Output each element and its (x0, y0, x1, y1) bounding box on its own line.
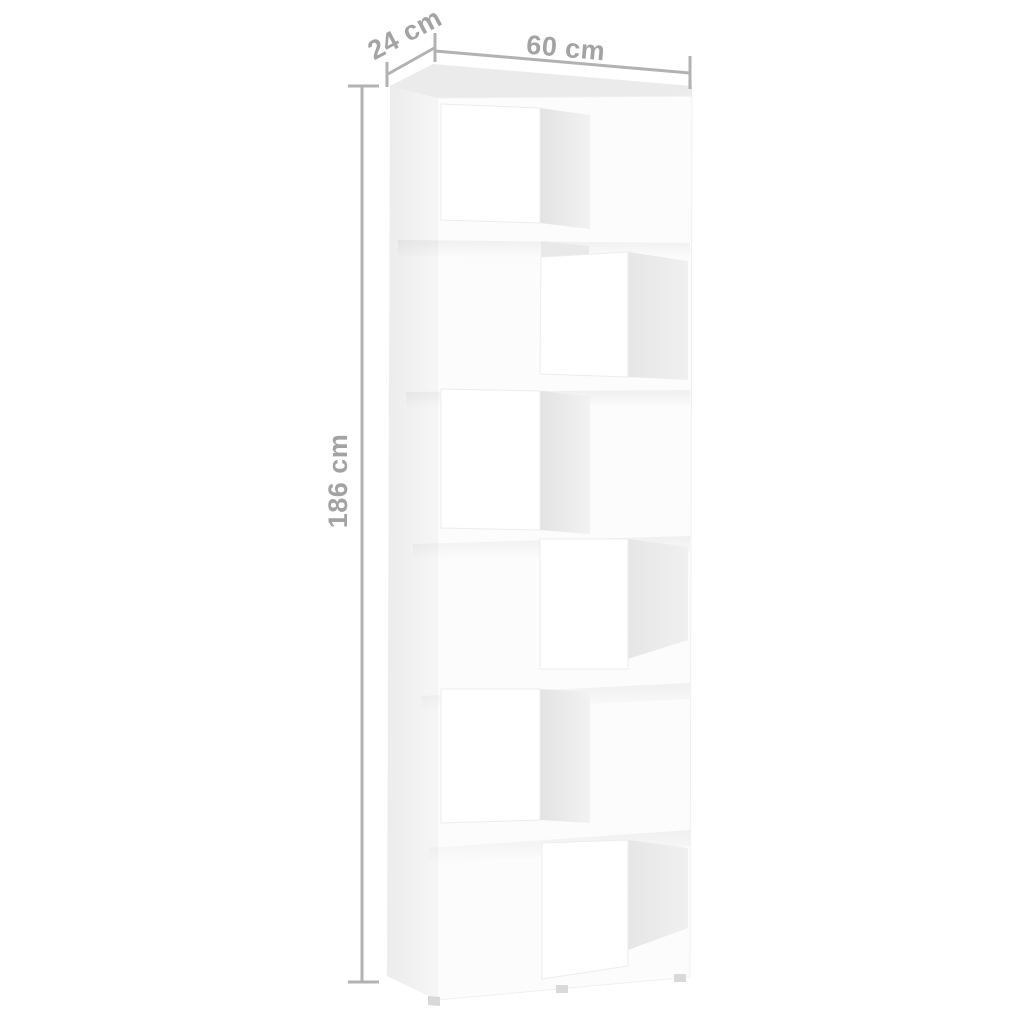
bookshelf-diagram-canvas: 186 cm 24 cm 60 cm (0, 0, 1024, 1024)
compartment-2-interior-wall (628, 252, 688, 380)
compartment-3-interior-wall (540, 391, 590, 534)
bookshelf-foot-middle (556, 985, 568, 993)
bookshelf-foot-right (674, 974, 686, 982)
compartment-5-opening (441, 689, 540, 823)
height-dimension-label: 186 cm (323, 434, 353, 529)
bookshelf (387, 64, 692, 1006)
compartment-4-interior-wall (628, 539, 688, 659)
compartment-5-interior-wall (540, 689, 590, 823)
compartment-2-opening (540, 252, 628, 377)
product-dimension-diagram: 186 cm 24 cm 60 cm (0, 0, 1024, 1024)
compartment-4-opening (540, 539, 628, 669)
bookshelf-foot-left (428, 996, 440, 1006)
compartment-6-opening (542, 840, 628, 979)
compartment-1-opening (441, 104, 540, 223)
compartment-1-interior-wall (540, 108, 590, 229)
compartment-3-opening (441, 389, 540, 530)
